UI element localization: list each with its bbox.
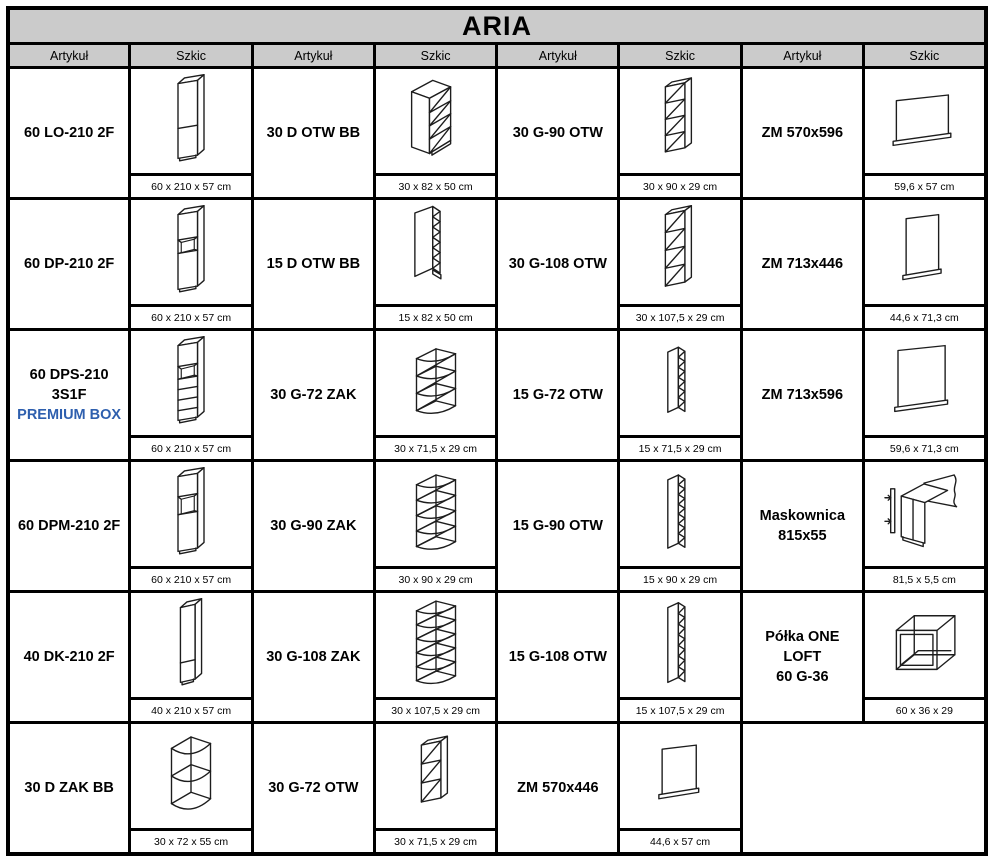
column-header-szkic-3: Szkic: [619, 44, 742, 68]
sketch-cell: 30 x 82 x 50 cm: [374, 68, 497, 199]
article-cell: 30 G-72 ZAK: [252, 330, 374, 461]
dimension-label: 60 x 210 x 57 cm: [131, 435, 251, 459]
article-cell: 30 D ZAK BB: [8, 723, 130, 855]
sketch-tall-oven-housing: [131, 200, 251, 304]
sketch-cell: 81,5 x 5,5 cm: [863, 461, 986, 592]
sketch-cell: 30 x 90 x 29 cm: [374, 461, 497, 592]
sketch-cell: 30 x 90 x 29 cm: [619, 68, 742, 199]
article-name: Maskownica: [745, 506, 860, 526]
article-name: 15 G-90 OTW: [500, 516, 615, 536]
dimension-label: 30 x 90 x 29 cm: [620, 173, 740, 197]
dimension-label: 30 x 107,5 x 29 cm: [620, 304, 740, 328]
sketch-cell: 15 x 82 x 50 cm: [374, 199, 497, 330]
dimension-label: 60 x 210 x 57 cm: [131, 173, 251, 197]
article-cell: 30 D OTW BB: [252, 68, 374, 199]
column-header-szkic-4: Szkic: [863, 44, 986, 68]
sketch-cell: 30 x 107,5 x 29 cm: [374, 592, 497, 723]
sketch-wall-open-narrow-72: [620, 331, 740, 435]
dimension-label: 15 x 90 x 29 cm: [620, 566, 740, 590]
dimension-label: 60 x 210 x 57 cm: [131, 566, 251, 590]
article-cell: 15 G-90 OTW: [497, 461, 619, 592]
catalog-row-2: 60 DP-210 2F60 x 210 x 57 cm15 D OTW BB1…: [8, 199, 986, 330]
sketch-tall-larder-40: [131, 593, 251, 697]
dimension-label: 44,6 x 71,3 cm: [865, 304, 984, 328]
dimension-label: 30 x 82 x 50 cm: [376, 173, 496, 197]
sketch-cell: 15 x 90 x 29 cm: [619, 461, 742, 592]
article-cell: 30 G-108 OTW: [497, 199, 619, 330]
article-cell: 15 D OTW BB: [252, 199, 374, 330]
article-name: ZM 570x596: [745, 123, 860, 143]
sketch-cell: 60 x 210 x 57 cm: [130, 199, 253, 330]
catalog-page: ARIA ArtykułSzkicArtykułSzkicArtykułSzki…: [0, 0, 993, 832]
empty-cell: [741, 723, 986, 855]
sketch-cell: 60 x 210 x 57 cm: [130, 330, 253, 461]
sketch-cell: 30 x 72 x 55 cm: [130, 723, 253, 855]
sketch-cell: 30 x 71,5 x 29 cm: [374, 330, 497, 461]
sketch-panel-570x596: [865, 69, 984, 173]
dimension-label: 59,6 x 57 cm: [865, 173, 984, 197]
dimension-label: 60 x 36 x 29: [865, 697, 984, 721]
article-cell: 30 G-90 ZAK: [252, 461, 374, 592]
article-cell: ZM 570x446: [497, 723, 619, 855]
article-name: 15 G-108 OTW: [500, 647, 615, 667]
sketch-panel-570x446: [620, 724, 740, 828]
column-header-artykul-4: Artykuł: [741, 44, 863, 68]
article-cell: ZM 570x596: [741, 68, 863, 199]
article-name: Półka ONE LOFT: [745, 627, 860, 668]
article-name: 30 G-108 OTW: [500, 254, 615, 274]
sketch-panel-713x596: [865, 331, 984, 435]
article-cell: 30 G-90 OTW: [497, 68, 619, 199]
article-name: 60 DP-210 2F: [12, 254, 126, 274]
sketch-cell: 40 x 210 x 57 cm: [130, 592, 253, 723]
sketch-cell: 15 x 71,5 x 29 cm: [619, 330, 742, 461]
sketch-wall-open-72: [376, 724, 496, 828]
article-cell: 40 DK-210 2F: [8, 592, 130, 723]
article-name: 15 D OTW BB: [256, 254, 371, 274]
article-cell: ZM 713x446: [741, 199, 863, 330]
catalog-table: ARIA ArtykułSzkicArtykułSzkicArtykułSzki…: [6, 6, 988, 856]
sketch-corner-shelf-90: [376, 462, 496, 566]
column-header-artykul-2: Artykuł: [252, 44, 374, 68]
column-header-artykul-1: Artykuł: [8, 44, 130, 68]
dimension-label: 81,5 x 5,5 cm: [865, 566, 984, 590]
sketch-cell: 30 x 107,5 x 29 cm: [619, 199, 742, 330]
article-name: 30 D OTW BB: [256, 123, 371, 143]
sketch-cell: 60 x 36 x 29: [863, 592, 986, 723]
sketch-maskownica-strip: [865, 462, 984, 566]
dimension-label: 30 x 90 x 29 cm: [376, 566, 496, 590]
dimension-label: 15 x 82 x 50 cm: [376, 304, 496, 328]
article-cell: 60 DPS-210 3S1FPREMIUM BOX: [8, 330, 130, 461]
article-name: ZM 713x446: [745, 254, 860, 274]
dimension-label: 15 x 107,5 x 29 cm: [620, 697, 740, 721]
dimension-label: 15 x 71,5 x 29 cm: [620, 435, 740, 459]
article-name: ZM 570x446: [500, 778, 615, 798]
article-cell: 60 DPM-210 2F: [8, 461, 130, 592]
sketch-wall-open-108: [620, 200, 740, 304]
article-cell: 15 G-72 OTW: [497, 330, 619, 461]
article-cell: Maskownica815x55: [741, 461, 863, 592]
article-cell: 30 G-108 ZAK: [252, 592, 374, 723]
article-cell: 60 LO-210 2F: [8, 68, 130, 199]
dimension-label: 30 x 107,5 x 29 cm: [376, 697, 496, 721]
sketch-cell: 59,6 x 57 cm: [863, 68, 986, 199]
catalog-row-6: 30 D ZAK BB30 x 72 x 55 cm30 G-72 OTW30 …: [8, 723, 986, 855]
sketch-base-open-shelf-15: [376, 200, 496, 304]
sketch-corner-shelf-72: [376, 331, 496, 435]
sketch-base-open-shelf-30: [376, 69, 496, 173]
dimension-label: 40 x 210 x 57 cm: [131, 697, 251, 721]
article-name: 30 D ZAK BB: [12, 778, 126, 798]
sketch-cell: 59,6 x 71,3 cm: [863, 330, 986, 461]
sketch-wall-open-narrow-90: [620, 462, 740, 566]
column-header-artykul-3: Artykuł: [497, 44, 619, 68]
article-cell: ZM 713x596: [741, 330, 863, 461]
sketch-wall-open-90: [620, 69, 740, 173]
article-name: 60 DPM-210 2F: [12, 516, 126, 536]
column-header-szkic-2: Szkic: [374, 44, 497, 68]
article-name: 15 G-72 OTW: [500, 385, 615, 405]
catalog-row-5: 40 DK-210 2F40 x 210 x 57 cm30 G-108 ZAK…: [8, 592, 986, 723]
dimension-label: 60 x 210 x 57 cm: [131, 304, 251, 328]
catalog-row-3: 60 DPS-210 3S1FPREMIUM BOX60 x 210 x 57 …: [8, 330, 986, 461]
article-cell: Półka ONE LOFT60 G-36: [741, 592, 863, 723]
sketch-corner-shelf-108: [376, 593, 496, 697]
sketch-cell: 30 x 71,5 x 29 cm: [374, 723, 497, 855]
page-title: ARIA: [8, 8, 986, 44]
article-name: ZM 713x596: [745, 385, 860, 405]
sketch-cell: 60 x 210 x 57 cm: [130, 461, 253, 592]
article-cell: 15 G-108 OTW: [497, 592, 619, 723]
dimension-label: 30 x 71,5 x 29 cm: [376, 435, 496, 459]
catalog-row-4: 60 DPM-210 2F60 x 210 x 57 cm30 G-90 ZAK…: [8, 461, 986, 592]
sketch-loft-shelf-frame: [865, 593, 984, 697]
column-header-row: ArtykułSzkicArtykułSzkicArtykułSzkicArty…: [8, 44, 986, 68]
sketch-cell: 44,6 x 57 cm: [619, 723, 742, 855]
sketch-cell: 15 x 107,5 x 29 cm: [619, 592, 742, 723]
sketch-wall-open-narrow-108: [620, 593, 740, 697]
sketch-cell: 60 x 210 x 57 cm: [130, 68, 253, 199]
article-cell: 60 DP-210 2F: [8, 199, 130, 330]
column-header-szkic-1: Szkic: [130, 44, 253, 68]
dimension-label: 59,6 x 71,3 cm: [865, 435, 984, 459]
article-name: 30 G-72 OTW: [256, 778, 371, 798]
sketch-cell: 44,6 x 71,3 cm: [863, 199, 986, 330]
sketch-tall-larder-2-front: [131, 69, 251, 173]
sketch-tall-oven-3-drawers: [131, 331, 251, 435]
article-name: 40 DK-210 2F: [12, 647, 126, 667]
article-name: 60 LO-210 2F: [12, 123, 126, 143]
sketch-panel-713x446: [865, 200, 984, 304]
article-name: 30 G-108 ZAK: [256, 647, 371, 667]
article-name: 60 G-36: [745, 667, 860, 687]
article-name: 815x55: [745, 526, 860, 546]
sketch-tall-oven-mid: [131, 462, 251, 566]
article-cell: 30 G-72 OTW: [252, 723, 374, 855]
catalog-row-1: 60 LO-210 2F60 x 210 x 57 cm30 D OTW BB3…: [8, 68, 986, 199]
article-name: 30 G-90 OTW: [500, 123, 615, 143]
premium-box-label: PREMIUM BOX: [12, 405, 126, 425]
sketch-corner-shelf-base: [131, 724, 251, 828]
article-name: 30 G-72 ZAK: [256, 385, 371, 405]
article-name: 30 G-90 ZAK: [256, 516, 371, 536]
title-row: ARIA: [8, 8, 986, 44]
article-name: 60 DPS-210 3S1F: [12, 365, 126, 406]
